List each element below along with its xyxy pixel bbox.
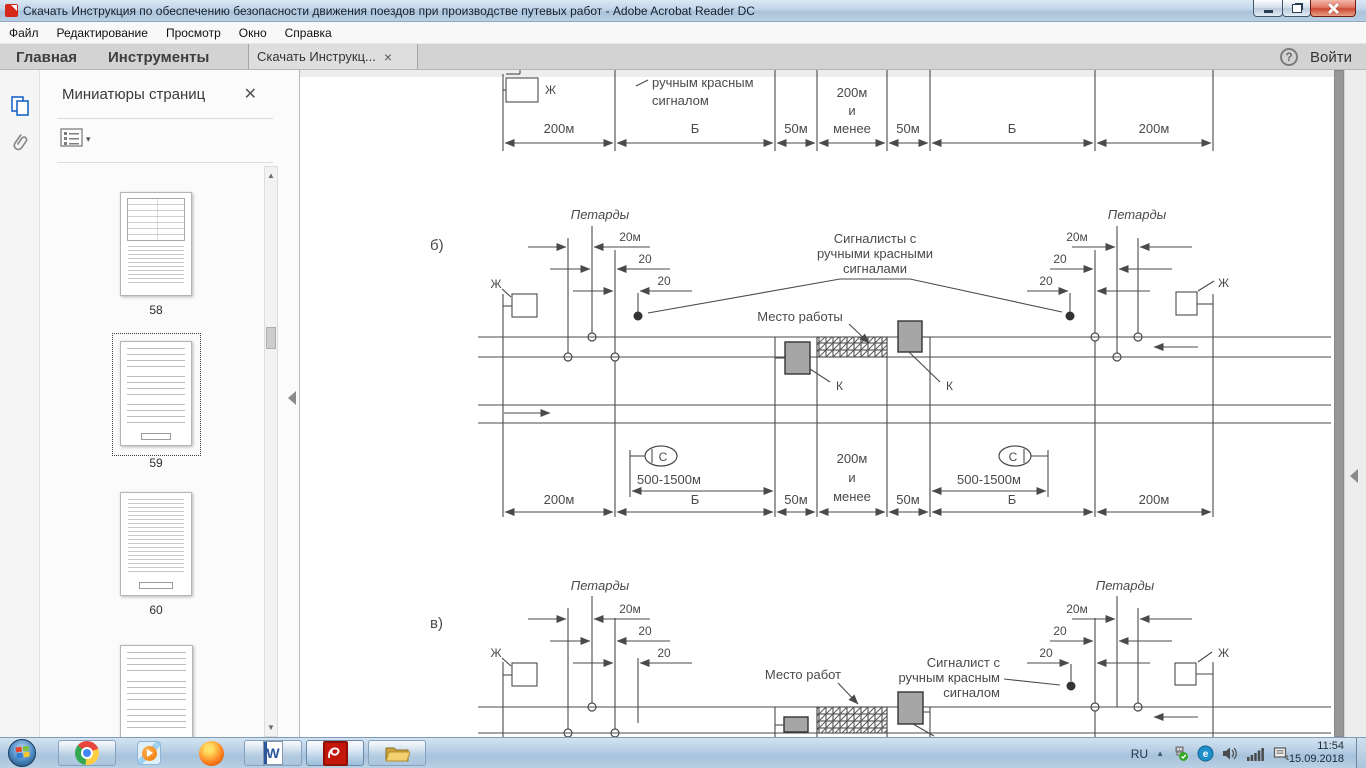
thumbnail-text-sketch [128,246,184,285]
zone-label: Б [691,121,700,136]
menu-file[interactable]: Файл [0,26,48,40]
show-desktop-button[interactable] [1356,738,1366,768]
signaler-note: Сигналист с [927,655,1001,670]
signaler-dot [1067,682,1076,691]
whistle-letter: С [659,450,668,464]
zone-label: 200м [837,85,868,100]
tray-app-icon[interactable]: e [1197,745,1214,762]
zone-label: 200м [544,492,575,507]
firefox-icon [199,741,224,766]
page-number: 59 [120,456,192,470]
worksite-label: Место работы [757,309,843,324]
worksite-label: Место работ [765,667,841,682]
cut-text: сигналом [652,93,709,108]
document-view: Ж ручным красным сигналом 200м и менее 2… [300,70,1334,737]
menu-help[interactable]: Справка [276,26,341,40]
dim-label: 20м [1066,230,1088,244]
whistle-letter: С [1009,450,1018,464]
zh-signal-box [506,78,538,102]
close-button[interactable] [1310,0,1356,17]
tab-document[interactable]: Скачать Инструкц... × [248,44,418,69]
dim-label: 20 [657,274,671,288]
document-scrollbar[interactable] [1334,70,1344,737]
minimize-button[interactable] [1253,0,1283,17]
menu-edit[interactable]: Редактирование [48,26,157,40]
zh-label: Ж [1218,646,1229,660]
window-title: Скачать Инструкция по обеспечению безопа… [23,4,755,18]
petards-label: Петарды [1108,207,1167,222]
page-thumbnails-icon[interactable] [9,95,31,117]
panel-scrollbar[interactable]: ▲ ▼ [264,166,278,737]
zh-signal-box [1176,292,1197,315]
taskbar-firefox-button[interactable] [182,740,240,766]
diagram-letter: в) [430,615,443,632]
taskbar-word-button[interactable]: W [244,740,302,766]
thumbnail-stamp-sketch [141,433,172,440]
main-area: Миниатюры страниц ✕ ▾ 58 [0,70,1366,737]
minimize-icon [1264,10,1273,13]
range-label: 500-1500м [637,472,701,487]
page-number: 58 [120,303,192,317]
zone-label: 200м [1139,121,1170,136]
start-button[interactable] [5,738,39,768]
diagram-b: б) Петарды 20м 20 [430,207,1331,517]
zone-label: и [848,470,855,485]
dim-label: 20 [638,624,652,638]
chevron-down-icon: ▾ [86,134,91,145]
zone-label: 200м [1139,492,1170,507]
dim-label: 20м [619,602,641,616]
title-bar: Скачать Инструкция по обеспечению безопа… [0,0,1366,22]
thumbnail-stamp-sketch [139,582,173,589]
thumbnail-options-icon[interactable] [60,128,84,148]
signaler-note: сигналом [943,685,1000,700]
action-center-icon[interactable] [1273,746,1290,762]
dim-label: 20м [1066,602,1088,616]
range-label: 500-1500м [957,472,1021,487]
panel-title: Миниатюры страниц [62,86,205,103]
clock-date: 15.09.2018 [1289,753,1344,766]
zone-label: Б [1008,492,1017,507]
cut-text: ручным красным [652,75,754,90]
k-label: К [946,379,953,393]
panel-scrollbar-thumb[interactable] [266,327,276,349]
thumbnail-diagram-sketch [127,348,186,371]
taskbar-explorer-button[interactable] [368,740,426,766]
navigation-rail [0,70,40,737]
clock-time: 11:54 [1289,740,1344,753]
help-icon[interactable]: ? [1280,48,1298,66]
tools-pane-collapsed [1344,70,1366,737]
divider [57,162,273,163]
tab-tools[interactable]: Инструменты [108,44,209,70]
k-signal-box [784,717,808,732]
signalers-note: ручными красными [817,246,933,261]
attachments-paperclip-icon[interactable] [9,132,31,154]
zone-label: 50м [896,492,919,507]
zone-label: Б [691,492,700,507]
dim-label: 20 [1039,646,1053,660]
dim-label: 20 [1053,252,1067,266]
document-scrollbar-thumb[interactable] [1334,70,1344,737]
zone-label: 50м [896,121,919,136]
divider [57,118,273,119]
page-number: 60 [120,603,192,617]
k-signal-box [898,692,923,724]
zh-signal-box [512,294,537,317]
taskbar: W RU ▲ e [0,737,1366,768]
language-indicator[interactable]: RU [1131,747,1148,761]
diagram-letter: б) [430,237,444,254]
taskbar-media-player-button[interactable] [120,740,178,766]
zh-label: Ж [490,646,501,660]
usb-device-icon[interactable] [1172,745,1189,762]
tab-bar: Главная Инструменты Скачать Инструкц... … [0,44,1366,70]
diagram-a-fragment: Ж ручным красным сигналом 200м и менее 2… [503,70,1213,151]
taskbar-chrome-button[interactable] [58,740,116,766]
thumbnail-text-sketch [128,499,184,572]
page-thumbnail-partial[interactable] [120,645,193,737]
window-controls [1254,0,1356,17]
zone-label: менее [833,489,871,504]
tab-close-icon[interactable]: × [384,50,392,64]
zone-label: 50м [784,121,807,136]
taskbar-clock[interactable]: 11:54 15.09.2018 [1289,740,1344,766]
signaler-note: ручным красным [898,670,1000,685]
restore-icon [1292,4,1302,13]
scroll-down-icon[interactable]: ▼ [265,723,277,732]
pdf-app-icon [5,4,18,17]
dim-label: 20 [657,646,671,660]
dim-label: 20 [1039,274,1053,288]
thumbnail-diagram-sketch [127,404,186,427]
menu-view[interactable]: Просмотр [157,26,230,40]
tab-home[interactable]: Главная [16,44,77,70]
signaler-dot [634,312,643,321]
restore-button[interactable] [1282,0,1311,17]
network-signal-icon[interactable] [1247,747,1265,761]
sign-in-button[interactable]: Войти [1310,49,1352,66]
explorer-folder-icon [384,742,410,764]
scroll-up-icon[interactable]: ▲ [265,171,277,180]
dim-label: 20м [619,230,641,244]
k-signal-box [785,342,810,374]
signalers-note: Сигналисты с [834,231,917,246]
zone-label: Б [1008,121,1017,136]
thumbnail-diagram-sketch [127,681,187,703]
system-tray: RU ▲ e [1131,738,1290,768]
tools-pane-expand-handle[interactable] [1350,469,1358,483]
petards-label: Петарды [1096,578,1155,593]
zh-label: Ж [545,83,556,97]
page-thumbnail-58[interactable] [120,192,192,296]
dim-label: 20 [1053,624,1067,638]
chrome-icon [75,741,99,765]
thumbnail-diagram-sketch [127,709,187,731]
zh-label: Ж [490,277,501,291]
word-icon: W [263,741,283,765]
taskbar-acrobat-button[interactable] [306,740,364,766]
media-player-icon [137,741,161,765]
zone-label: менее [833,121,871,136]
petards-label: Петарды [571,578,630,593]
worksite-hatch [817,337,887,357]
dim-label: 20 [638,252,652,266]
volume-icon[interactable] [1222,746,1239,761]
k-signal-box [898,321,922,352]
worksite-hatch [817,707,887,733]
zone-label: 50м [784,492,807,507]
tab-document-label: Скачать Инструкц... [257,49,376,64]
signalers-note: сигналами [843,261,907,276]
panel-collapse-handle[interactable] [288,391,296,405]
k-label: К [836,379,843,393]
petards-label: Петарды [571,207,630,222]
page-thumbnail-60[interactable] [120,492,192,596]
zh-signal-box [512,663,537,686]
svg-text:e: e [1203,749,1209,760]
zone-label: и [848,103,855,118]
zone-label: 200м [544,121,575,136]
thumbnail-table-sketch [127,198,186,241]
close-icon [1327,2,1339,14]
page-thumbnail-59[interactable] [120,341,192,446]
thumbnail-diagram-sketch [127,376,186,399]
zh-label: Ж [1218,276,1229,290]
zh-signal-box [1175,663,1196,685]
signaler-dot [1066,312,1075,321]
menu-window[interactable]: Окно [230,26,276,40]
acrobat-window: Скачать Инструкция по обеспечению безопа… [0,0,1366,768]
zone-label: 200м [837,451,868,466]
thumbnail-diagram-sketch [127,652,187,674]
acrobat-icon [323,741,348,766]
diagram-v: в) Петарды 20м 20 [430,578,1331,737]
menu-bar: Файл Редактирование Просмотр Окно Справк… [0,22,1366,44]
panel-close-icon[interactable]: ✕ [244,84,257,104]
thumbnails-panel: Миниатюры страниц ✕ ▾ 58 [40,70,300,737]
pdf-page-content: Ж ручным красным сигналом 200м и менее 2… [300,70,1334,737]
hidden-icons-chevron[interactable]: ▲ [1156,749,1164,758]
